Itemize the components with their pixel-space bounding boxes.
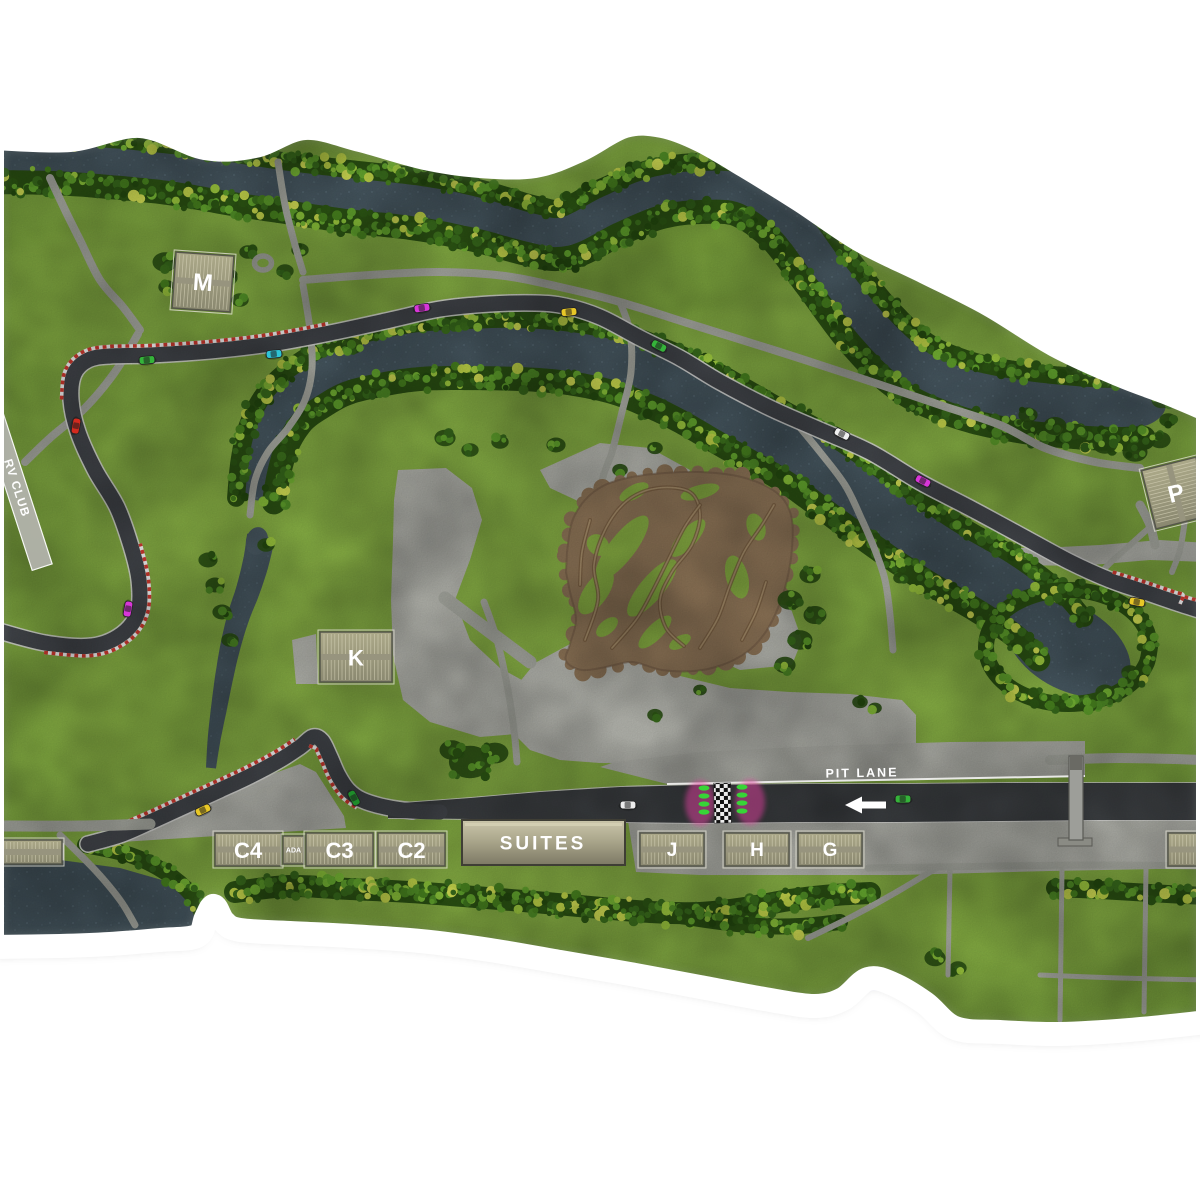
svg-text:K: K (348, 646, 364, 671)
svg-text:PIT LANE: PIT LANE (825, 765, 898, 780)
svg-text:J: J (667, 840, 678, 861)
svg-text:ADA: ADA (286, 848, 301, 855)
svg-text:M: M (192, 269, 214, 297)
svg-text:C3: C3 (325, 838, 353, 863)
svg-text:H: H (750, 840, 764, 861)
svg-text:C2: C2 (397, 838, 425, 863)
svg-text:C4: C4 (234, 838, 263, 863)
svg-text:SUITES: SUITES (500, 834, 587, 855)
svg-text:G: G (823, 840, 838, 861)
